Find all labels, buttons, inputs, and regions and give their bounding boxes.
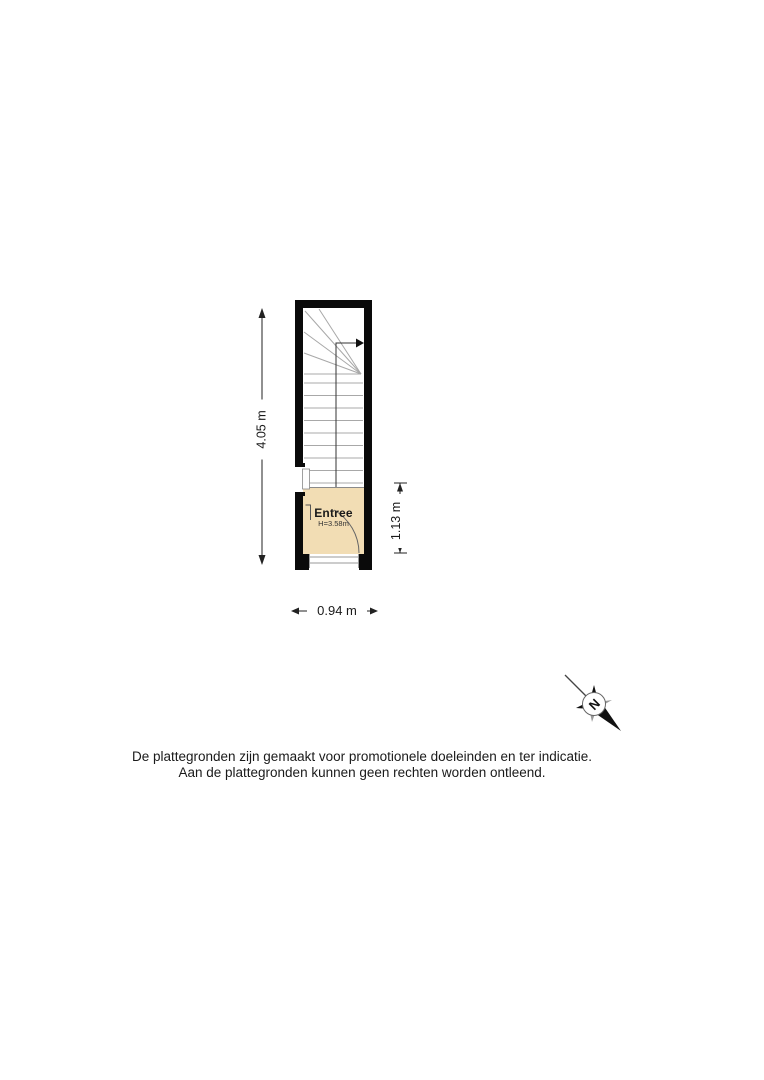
niche-jamb-top [295, 463, 305, 467]
wall-top [295, 300, 372, 308]
wall-bottom-left-corner [295, 554, 309, 570]
dim-label-entree-depth: 1.13 m [389, 494, 403, 548]
floor-plan [0, 0, 764, 1080]
disclaimer-text: De plattegronden zijn gemaakt voor promo… [0, 749, 724, 781]
dim-label-total-depth: 4.05 m [255, 400, 270, 460]
disclaimer-line-2: Aan de plattegronden kunnen geen rechten… [0, 765, 724, 781]
dim-label-width: 0.94 m [307, 603, 367, 618]
disclaimer-line-1: De plattegronden zijn gemaakt voor promo… [0, 749, 724, 765]
floorplan-page: { "floorplan": { "room": { "name": "Entr… [0, 0, 764, 1080]
wall-right [364, 300, 372, 570]
wall-bottom-right-corner [359, 554, 372, 570]
wall-left-upper [295, 300, 303, 463]
room-label-entree: Entree [303, 506, 364, 520]
room-ceiling-height: H=3.58m [303, 519, 364, 528]
